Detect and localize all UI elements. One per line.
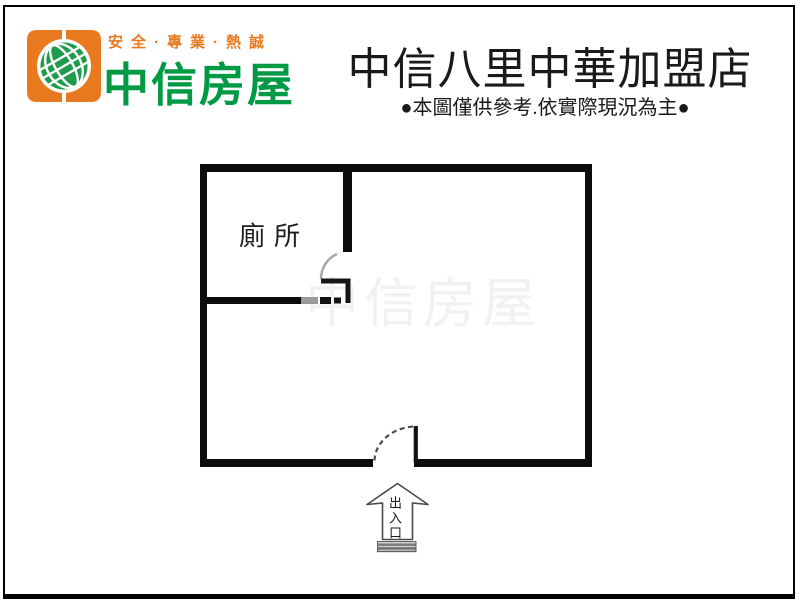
entrance-door-swing-arc xyxy=(375,427,415,461)
entrance-label: 出入口 xyxy=(388,496,401,541)
toilet-wall-dash-2 xyxy=(334,298,341,304)
toilet-room-label: 廁所 xyxy=(239,216,309,253)
entrance-step-bar-2 xyxy=(378,545,417,548)
toilet-door-sill xyxy=(301,297,318,304)
entrance-door xyxy=(375,426,416,463)
entrance-step-bar-3 xyxy=(378,549,417,552)
entrance-step-bar-1 xyxy=(378,542,417,545)
toilet-wall-dash-1 xyxy=(320,297,331,304)
